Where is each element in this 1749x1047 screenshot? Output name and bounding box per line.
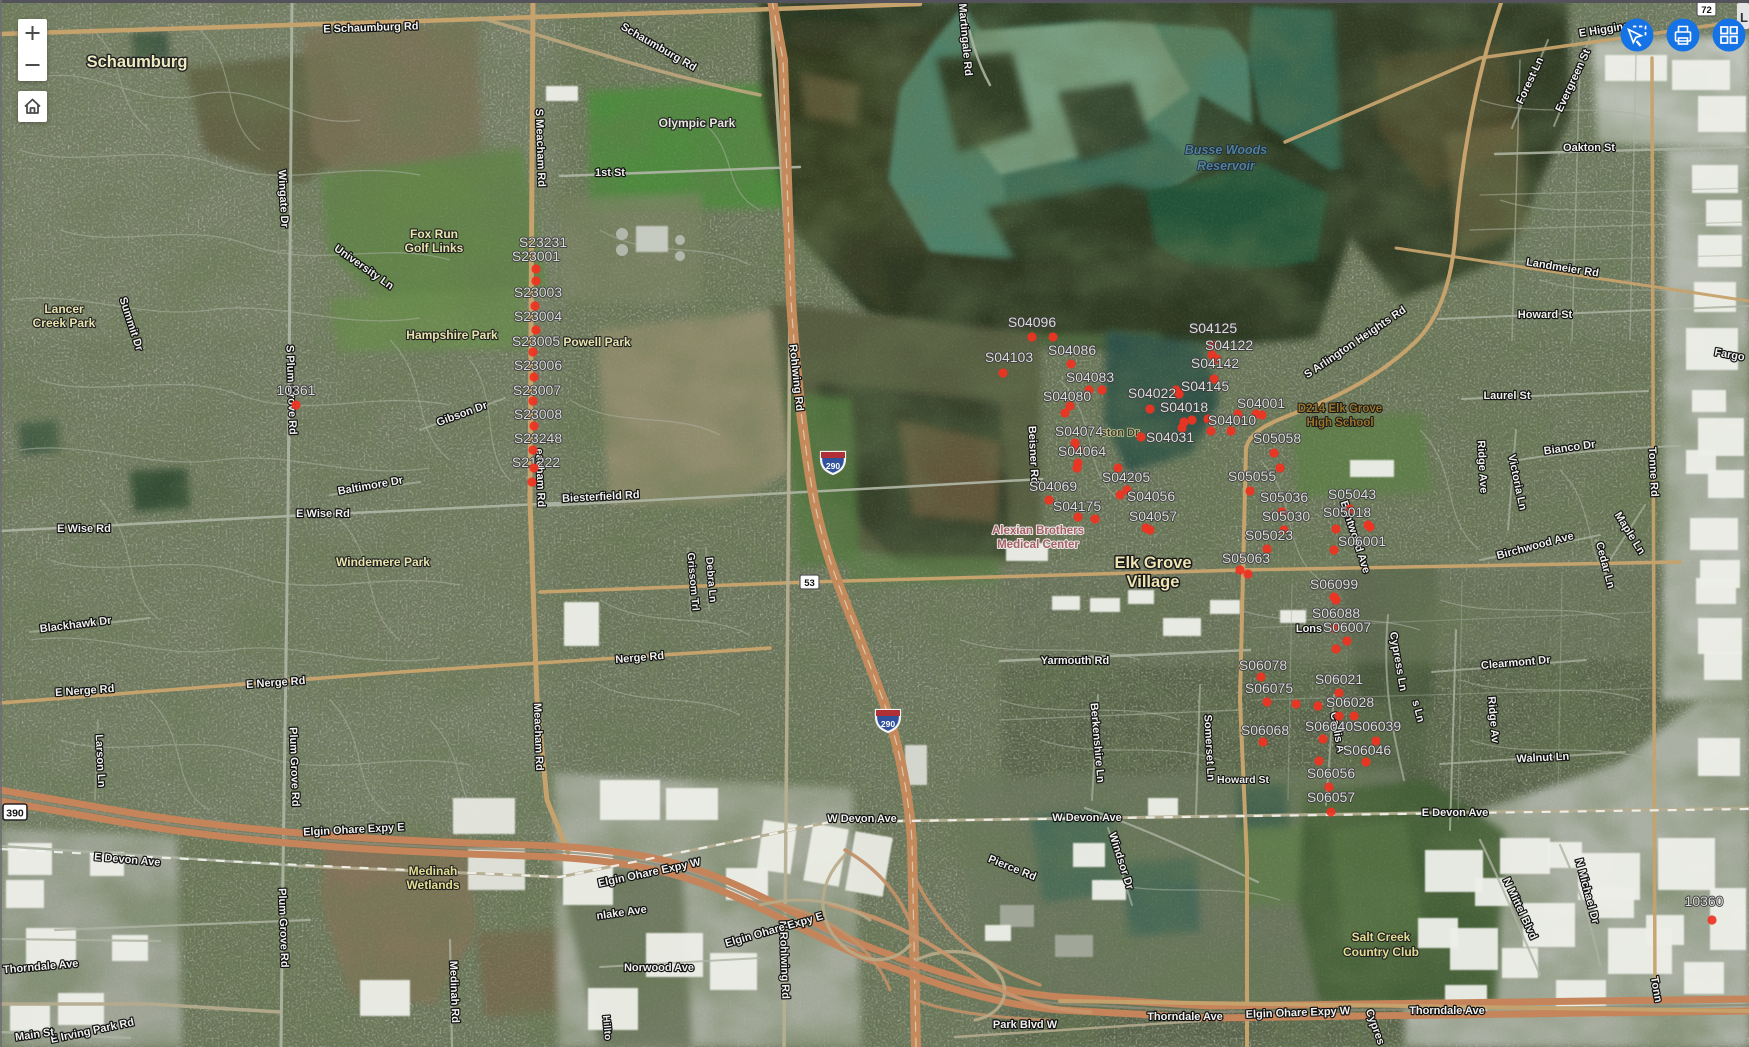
svg-text:S04031: S04031 (1146, 429, 1194, 445)
svg-text:S06068: S06068 (1241, 722, 1289, 738)
svg-text:10360: 10360 (1685, 893, 1724, 909)
svg-text:S06040: S06040 (1305, 718, 1353, 734)
svg-text:S05058: S05058 (1253, 430, 1301, 446)
svg-text:390: 390 (6, 808, 24, 820)
svg-text:290: 290 (881, 719, 895, 729)
svg-text:1st St: 1st St (595, 167, 625, 179)
svg-text:W Devon Ave: W Devon Ave (827, 813, 896, 825)
svg-text:S04069: S04069 (1029, 478, 1077, 494)
svg-text:E Wise Rd: E Wise Rd (57, 523, 111, 535)
svg-text:Wetlands: Wetlands (406, 878, 459, 892)
svg-text:Powell Park: Powell Park (563, 335, 631, 349)
svg-text:Salt Creek: Salt Creek (1352, 930, 1411, 944)
svg-text:Laurel St: Laurel St (1483, 390, 1530, 402)
svg-text:Windemere Park: Windemere Park (336, 555, 430, 569)
svg-text:Medinah: Medinah (409, 864, 458, 878)
svg-text:Hampshire Park: Hampshire Park (406, 328, 498, 342)
svg-text:S23248: S23248 (514, 430, 562, 446)
svg-text:S04103: S04103 (985, 349, 1033, 365)
svg-text:S04010: S04010 (1208, 412, 1256, 428)
svg-text:S06028: S06028 (1326, 694, 1374, 710)
svg-text:Lancer: Lancer (44, 302, 84, 316)
svg-text:S05023: S05023 (1245, 527, 1293, 543)
svg-text:S06001: S06001 (1338, 533, 1386, 549)
svg-text:S04122: S04122 (1205, 337, 1253, 353)
svg-text:Hillto: Hillto (600, 1015, 613, 1041)
svg-text:Golf Links: Golf Links (405, 241, 464, 255)
svg-text:S23003: S23003 (514, 284, 562, 300)
svg-text:S06075: S06075 (1245, 680, 1293, 696)
svg-text:Village: Village (1127, 573, 1180, 591)
svg-text:S04205: S04205 (1102, 469, 1150, 485)
svg-text:Medinah Rd: Medinah Rd (447, 961, 461, 1024)
svg-text:S06021: S06021 (1315, 671, 1363, 687)
svg-text:S06057: S06057 (1307, 789, 1355, 805)
svg-text:E Wise Rd: E Wise Rd (296, 508, 350, 520)
svg-text:S04096: S04096 (1008, 314, 1056, 330)
svg-text:S04145: S04145 (1181, 378, 1229, 394)
svg-text:W Devon Ave: W Devon Ave (1052, 812, 1121, 824)
svg-text:Country Club: Country Club (1343, 945, 1419, 959)
svg-text:S05018: S05018 (1323, 504, 1371, 520)
svg-text:S06056: S06056 (1307, 765, 1355, 781)
svg-text:72: 72 (1701, 5, 1712, 16)
svg-text:S04080: S04080 (1043, 388, 1091, 404)
svg-text:Alexian Brothers: Alexian Brothers (992, 525, 1084, 537)
svg-text:Park Blvd W: Park Blvd W (993, 1019, 1058, 1031)
svg-text:S04142: S04142 (1191, 355, 1239, 371)
svg-text:S23006: S23006 (514, 357, 562, 373)
svg-text:Oakton St: Oakton St (1563, 142, 1615, 154)
svg-text:S23008: S23008 (514, 406, 562, 422)
svg-text:S04018: S04018 (1160, 399, 1208, 415)
svg-text:Elk Grove: Elk Grove (1114, 554, 1191, 572)
svg-text:L: L (1740, 10, 1748, 25)
svg-text:Fox Run: Fox Run (410, 227, 458, 241)
svg-text:Howard St: Howard St (1217, 774, 1269, 786)
svg-text:S04175: S04175 (1053, 498, 1101, 514)
svg-text:High School: High School (1306, 417, 1373, 429)
svg-text:Norwood Ave: Norwood Ave (624, 962, 694, 974)
svg-text:S06046: S06046 (1343, 742, 1391, 758)
svg-text:S06078: S06078 (1239, 657, 1287, 673)
svg-text:S04064: S04064 (1058, 443, 1106, 459)
svg-text:S06039: S06039 (1353, 718, 1401, 734)
svg-text:Lons: Lons (1296, 623, 1322, 635)
svg-text:S05043: S05043 (1328, 486, 1376, 502)
svg-text:S23004: S23004 (514, 308, 562, 324)
svg-text:D214 Elk Grove: D214 Elk Grove (1298, 403, 1382, 415)
svg-text:Howard St: Howard St (1518, 309, 1573, 321)
svg-text:S05036: S05036 (1260, 489, 1308, 505)
svg-text:S04001: S04001 (1237, 395, 1285, 411)
svg-text:Thorndale Ave: Thorndale Ave (1409, 1005, 1485, 1017)
svg-text:S04057: S04057 (1129, 508, 1177, 524)
svg-text:53: 53 (804, 578, 815, 589)
svg-text:Medical Center: Medical Center (997, 539, 1079, 551)
svg-text:Meacham Rd: Meacham Rd (531, 703, 545, 771)
svg-text:S04074: S04074 (1055, 423, 1103, 439)
svg-text:Busse Woods: Busse Woods (1185, 143, 1267, 157)
svg-text:290: 290 (826, 461, 840, 471)
svg-text:S05063: S05063 (1222, 550, 1270, 566)
svg-text:S23005: S23005 (512, 333, 560, 349)
svg-text:10361: 10361 (277, 382, 316, 398)
svg-text:E Devon Ave: E Devon Ave (1422, 807, 1488, 819)
svg-text:S06099: S06099 (1310, 576, 1358, 592)
svg-text:Thorndale Ave: Thorndale Ave (1147, 1011, 1223, 1023)
svg-text:S04056: S04056 (1127, 488, 1175, 504)
svg-text:S23001: S23001 (512, 248, 560, 264)
svg-text:Olympic Park: Olympic Park (659, 116, 736, 130)
svg-text:S05030: S05030 (1262, 508, 1310, 524)
svg-text:S23007: S23007 (513, 382, 561, 398)
svg-text:Schaumburg: Schaumburg (87, 53, 188, 71)
svg-text:ston Dr: ston Dr (1101, 427, 1140, 439)
svg-text:S04125: S04125 (1189, 320, 1237, 336)
svg-text:S06007: S06007 (1323, 619, 1371, 635)
svg-text:Yarmouth Rd: Yarmouth Rd (1041, 655, 1109, 667)
svg-text:Creek Park: Creek Park (33, 316, 96, 330)
svg-text:Reservoir: Reservoir (1197, 159, 1256, 173)
svg-text:S04086: S04086 (1048, 342, 1096, 358)
svg-text:S05055: S05055 (1228, 468, 1276, 484)
svg-text:S04083: S04083 (1066, 369, 1114, 385)
